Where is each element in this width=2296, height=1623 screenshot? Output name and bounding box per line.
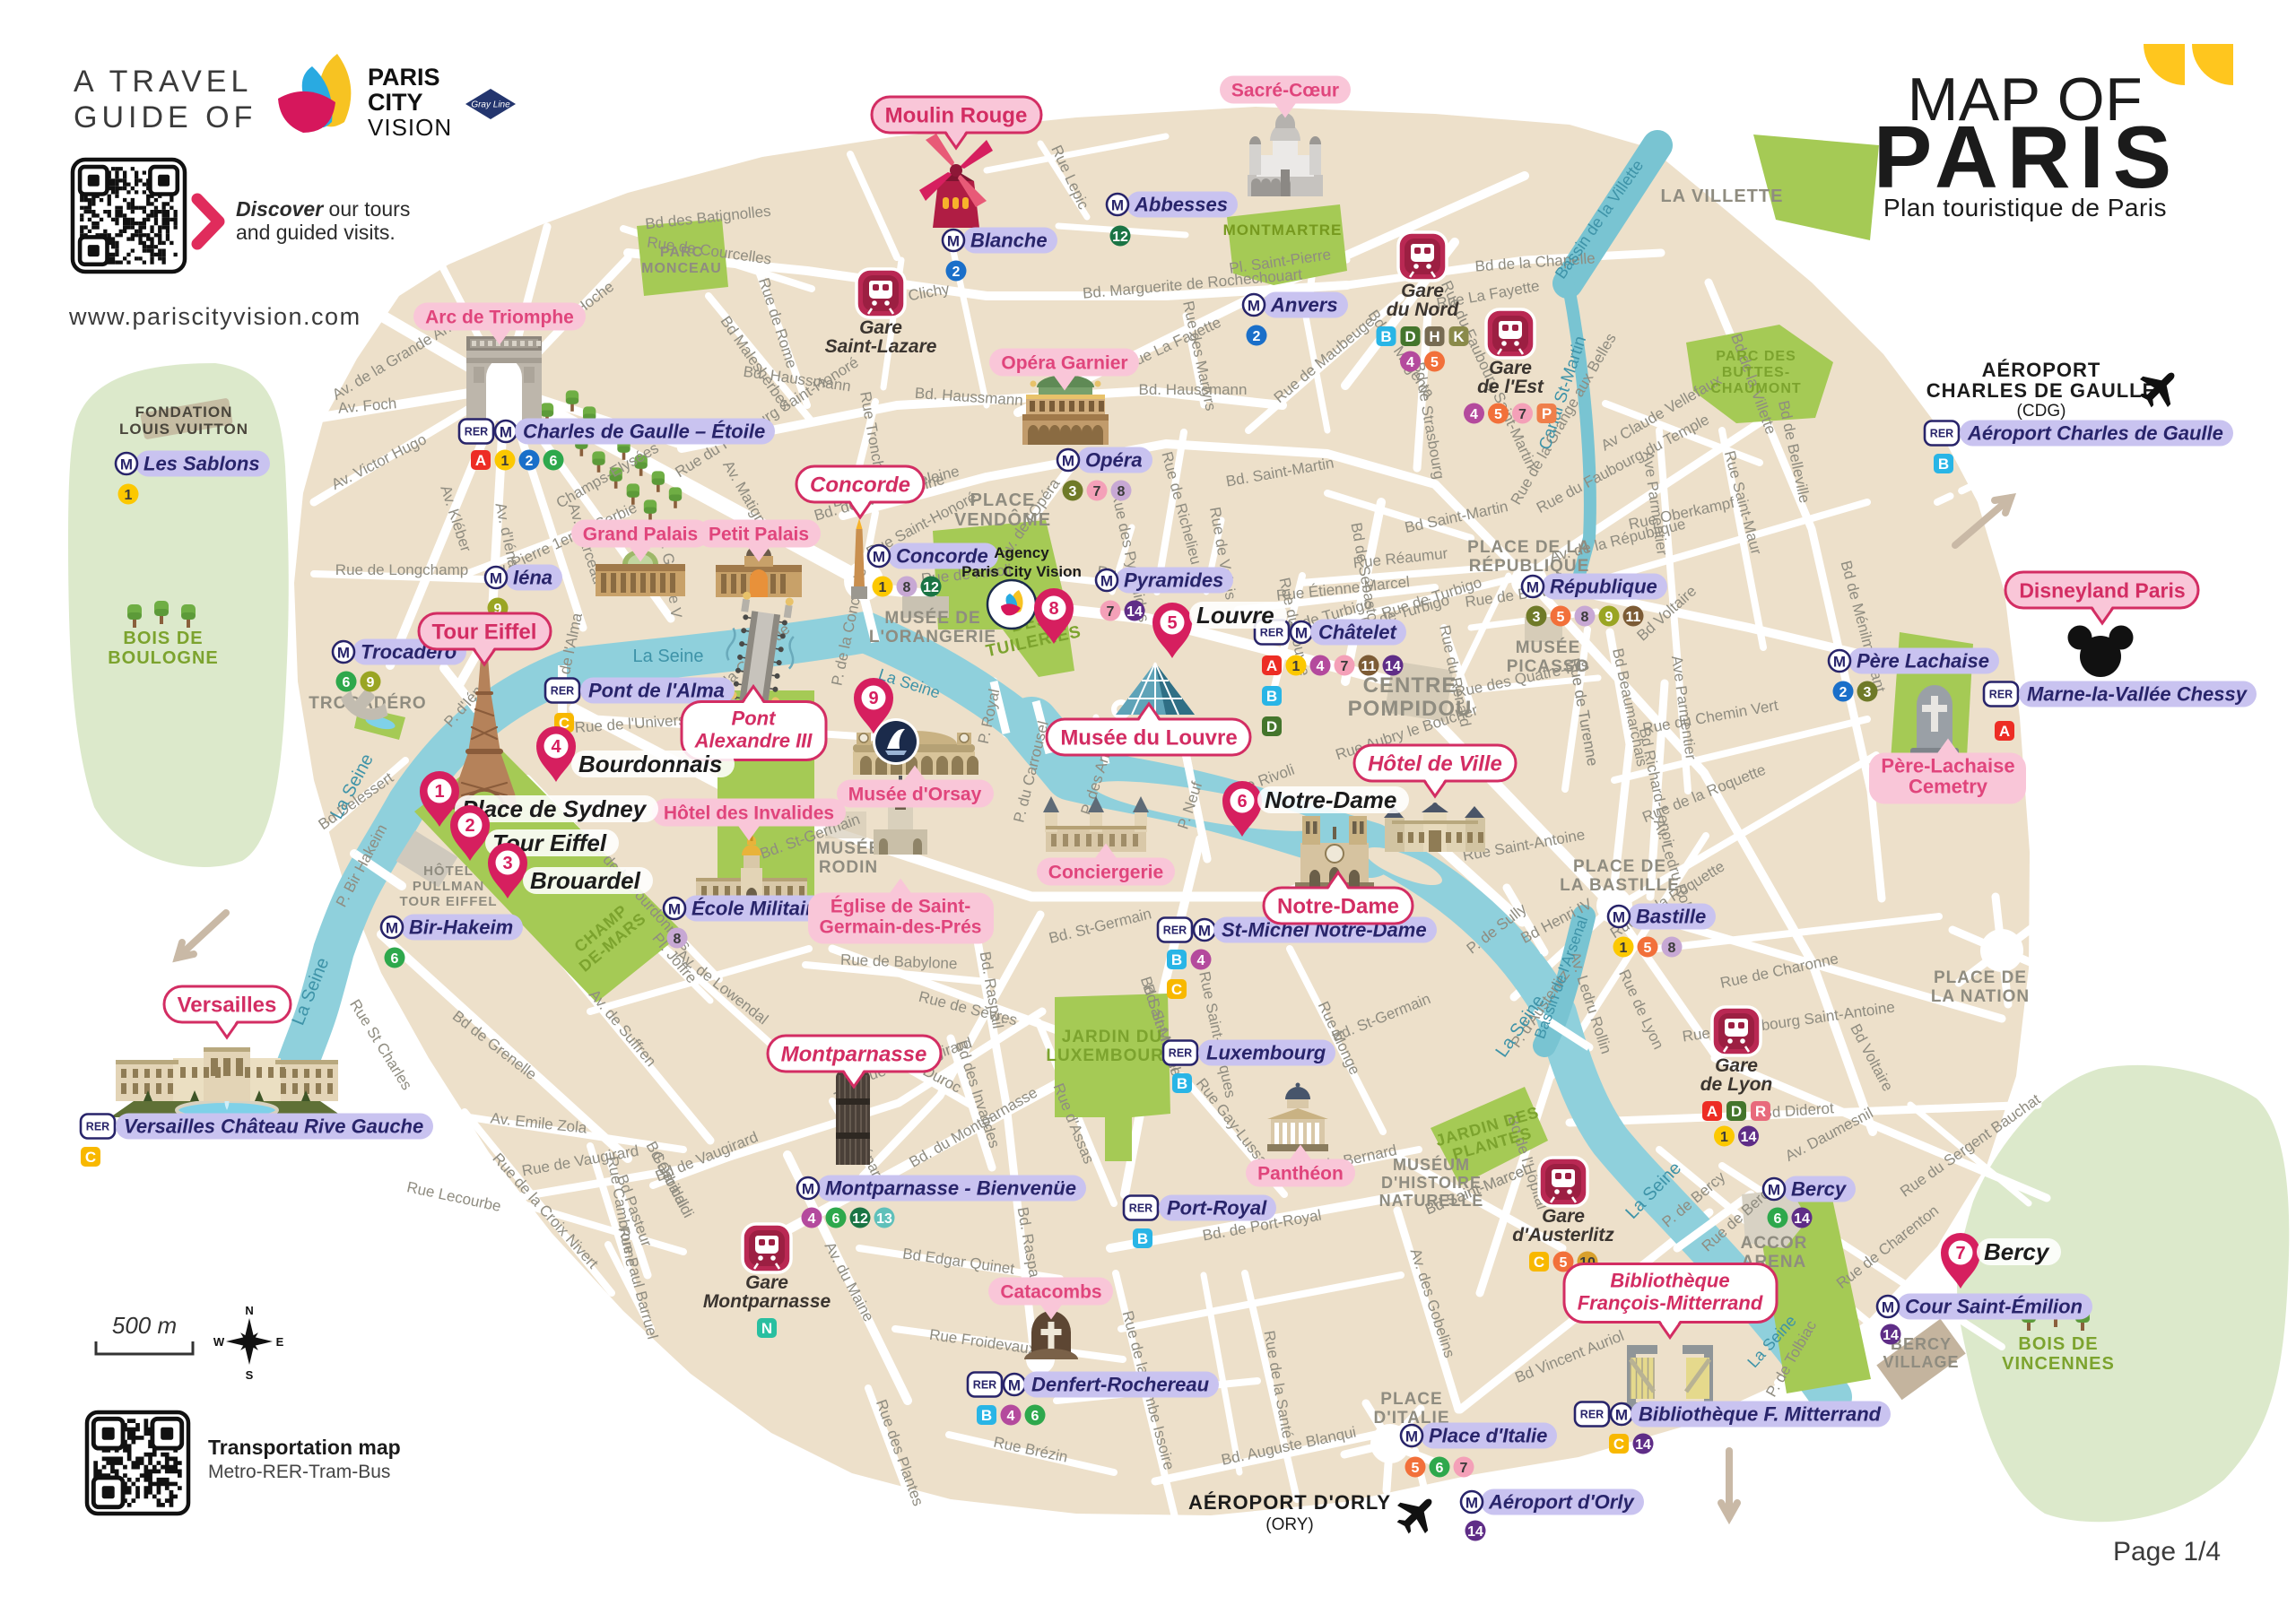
svg-text:Moulin Rouge: Moulin Rouge xyxy=(885,104,1028,128)
svg-text:M: M xyxy=(1613,909,1625,926)
svg-text:Montparnasse: Montparnasse xyxy=(703,1291,831,1312)
svg-text:D'HISTOIRE: D'HISTOIRE xyxy=(1381,1174,1482,1192)
svg-text:Musée du Louvre: Musée du Louvre xyxy=(1060,726,1237,751)
svg-text:HÔTEL: HÔTEL xyxy=(423,863,474,879)
svg-text:Hôtel de Ville: Hôtel de Ville xyxy=(1368,752,1502,777)
svg-text:4: 4 xyxy=(1470,407,1478,422)
svg-text:14: 14 xyxy=(1126,604,1143,620)
svg-text:PLACE: PLACE xyxy=(970,490,1036,510)
svg-text:N: N xyxy=(245,1304,253,1317)
svg-text:Saint-Lazare: Saint-Lazare xyxy=(825,336,937,357)
svg-text:PLACE: PLACE xyxy=(1380,1390,1442,1409)
svg-text:B: B xyxy=(981,1407,992,1424)
svg-text:M: M xyxy=(386,920,398,937)
svg-text:8: 8 xyxy=(1581,610,1589,625)
svg-text:3: 3 xyxy=(1069,484,1077,499)
svg-text:Tour Eiffel: Tour Eiffel xyxy=(432,621,537,645)
svg-text:B: B xyxy=(1177,1075,1187,1092)
svg-text:BUTTES-: BUTTES- xyxy=(1722,365,1790,380)
svg-text:Blanche: Blanche xyxy=(970,230,1048,252)
svg-text:1: 1 xyxy=(125,488,133,503)
svg-text:Discover our tours: Discover our tours xyxy=(236,197,410,221)
svg-text:M: M xyxy=(1100,573,1113,590)
svg-text:Bastille: Bastille xyxy=(1636,906,1706,928)
svg-text:Châtelet: Châtelet xyxy=(1318,621,1397,644)
svg-text:M: M xyxy=(668,901,681,918)
svg-text:LA NATION: LA NATION xyxy=(1931,987,2030,1006)
svg-text:Pyramides: Pyramides xyxy=(1124,569,1223,592)
svg-text:E: E xyxy=(276,1335,284,1349)
svg-text:VINCENNES: VINCENNES xyxy=(2002,1354,2115,1374)
svg-text:VILLAGE: VILLAGE xyxy=(1883,1353,1959,1371)
svg-text:Conciergerie: Conciergerie xyxy=(1048,863,1163,883)
svg-text:13: 13 xyxy=(876,1211,892,1227)
svg-text:B: B xyxy=(1266,688,1277,705)
svg-text:A: A xyxy=(1266,657,1277,674)
svg-text:Hôtel des Invalides: Hôtel des Invalides xyxy=(664,803,834,824)
svg-text:C: C xyxy=(1534,1254,1544,1271)
svg-text:A: A xyxy=(475,452,486,469)
svg-text:Grand Palais: Grand Palais xyxy=(583,525,698,545)
svg-text:C: C xyxy=(85,1149,96,1166)
svg-text:du Nord: du Nord xyxy=(1387,299,1460,320)
svg-text:5: 5 xyxy=(1557,610,1565,625)
svg-text:Luxembourg: Luxembourg xyxy=(1206,1042,1326,1064)
svg-text:14: 14 xyxy=(1794,1211,1810,1227)
svg-text:M: M xyxy=(337,645,350,662)
svg-text:Transportation map: Transportation map xyxy=(208,1436,401,1459)
svg-text:5: 5 xyxy=(1412,1461,1420,1476)
svg-text:Marne-la-Vallée Chessy: Marne-la-Vallée Chessy xyxy=(2027,683,2248,706)
svg-text:M: M xyxy=(1295,625,1308,642)
svg-text:CITY: CITY xyxy=(368,89,423,116)
svg-text:BOIS DE: BOIS DE xyxy=(2018,1334,2098,1354)
svg-text:LA VILLETTE: LA VILLETTE xyxy=(1661,187,1784,206)
svg-text:M: M xyxy=(1615,1407,1628,1424)
svg-text:Bd. Haussmann: Bd. Haussmann xyxy=(1139,381,1248,398)
svg-text:Agency: Agency xyxy=(994,544,1049,561)
svg-text:Place d'Italie: Place d'Italie xyxy=(1429,1425,1547,1447)
svg-text:RER: RER xyxy=(86,1121,109,1133)
svg-text:M: M xyxy=(1008,1377,1021,1394)
svg-text:Panthéon: Panthéon xyxy=(1257,1164,1344,1185)
svg-text:Germain-des-Prés: Germain-des-Prés xyxy=(820,917,982,938)
svg-text:2: 2 xyxy=(465,816,474,836)
svg-text:Les Sablons: Les Sablons xyxy=(143,453,260,475)
svg-text:NATURELLE: NATURELLE xyxy=(1379,1192,1484,1210)
svg-text:Aéroport Charles de Gaulle: Aéroport Charles de Gaulle xyxy=(1967,422,2223,445)
svg-text:PARIS: PARIS xyxy=(1874,108,2180,206)
svg-text:D: D xyxy=(1731,1103,1742,1120)
svg-text:(CDG): (CDG) xyxy=(2017,402,2066,421)
svg-text:D: D xyxy=(1266,718,1277,735)
svg-text:Gare: Gare xyxy=(1489,358,1532,378)
svg-text:d'Austerlitz: d'Austerlitz xyxy=(1512,1225,1614,1245)
svg-text:Catacombs: Catacombs xyxy=(1000,1282,1101,1303)
svg-text:M: M xyxy=(1768,1182,1780,1199)
svg-text:6: 6 xyxy=(1436,1461,1444,1476)
svg-text:PICASSO: PICASSO xyxy=(1507,657,1590,676)
svg-text:6: 6 xyxy=(1774,1211,1782,1227)
svg-text:Gare: Gare xyxy=(1715,1055,1758,1076)
svg-text:9: 9 xyxy=(1605,610,1613,625)
svg-text:and guided visits.: and guided visits. xyxy=(236,221,396,244)
svg-text:M: M xyxy=(1062,453,1074,470)
svg-text:H: H xyxy=(1429,328,1439,345)
svg-text:5: 5 xyxy=(1167,613,1177,633)
svg-text:Bibliothèque F. Mitterrand: Bibliothèque F. Mitterrand xyxy=(1639,1403,1882,1426)
svg-text:M: M xyxy=(490,570,502,587)
svg-text:1: 1 xyxy=(1620,941,1628,956)
svg-text:14: 14 xyxy=(1883,1328,1899,1343)
svg-text:2: 2 xyxy=(526,454,534,469)
svg-text:Iéna: Iéna xyxy=(513,567,552,589)
svg-text:RODIN: RODIN xyxy=(819,858,878,877)
svg-text:PARC: PARC xyxy=(660,245,703,260)
svg-text:Bir-Hakeim: Bir-Hakeim xyxy=(409,916,513,939)
svg-text:M: M xyxy=(1198,923,1211,940)
svg-text:6: 6 xyxy=(1237,792,1247,811)
svg-text:Paris City Vision: Paris City Vision xyxy=(961,563,1082,580)
svg-text:RER: RER xyxy=(551,685,574,698)
svg-text:11: 11 xyxy=(1361,659,1377,674)
svg-text:M: M xyxy=(947,233,960,250)
svg-text:7: 7 xyxy=(1093,484,1101,499)
svg-text:RER: RER xyxy=(1129,1202,1152,1215)
svg-text:2: 2 xyxy=(1839,685,1848,700)
svg-text:3: 3 xyxy=(1533,610,1541,625)
svg-text:Metro-RER-Tram-Bus: Metro-RER-Tram-Bus xyxy=(208,1462,390,1482)
svg-text:B: B xyxy=(1171,951,1182,968)
svg-text:Gare: Gare xyxy=(745,1272,788,1293)
svg-text:RER: RER xyxy=(973,1379,996,1392)
svg-text:Gare: Gare xyxy=(859,317,902,338)
svg-text:CENTRE: CENTRE xyxy=(1363,673,1457,698)
svg-text:Bourdonnais: Bourdonnais xyxy=(578,751,722,777)
svg-text:B: B xyxy=(1380,328,1391,345)
svg-text:Bercy: Bercy xyxy=(1791,1178,1848,1201)
svg-text:MONCEAU: MONCEAU xyxy=(641,261,722,276)
svg-text:VISION: VISION xyxy=(368,114,452,141)
svg-text:LUXEMBOURG: LUXEMBOURG xyxy=(1046,1046,1178,1065)
svg-text:B: B xyxy=(1938,456,1949,473)
svg-text:CHARLES DE GAULLE: CHARLES DE GAULLE xyxy=(1926,379,2157,402)
svg-text:5: 5 xyxy=(1560,1255,1568,1271)
svg-text:TOUR EIFFEL: TOUR EIFFEL xyxy=(399,894,497,909)
svg-text:11: 11 xyxy=(1626,610,1641,625)
svg-text:PARIS: PARIS xyxy=(368,64,440,91)
svg-text:Cour Saint-Émilion: Cour Saint-Émilion xyxy=(1905,1296,2083,1318)
svg-text:RER: RER xyxy=(1169,1047,1192,1060)
svg-text:PARC DES: PARC DES xyxy=(1716,349,1796,364)
svg-text:7: 7 xyxy=(1341,659,1349,674)
svg-text:D: D xyxy=(1405,328,1415,345)
svg-text:3: 3 xyxy=(1864,685,1872,700)
svg-text:RÉPUBLIQUE: RÉPUBLIQUE xyxy=(1469,556,1590,576)
svg-text:Louvre: Louvre xyxy=(1196,602,1274,629)
svg-text:C: C xyxy=(1613,1436,1624,1453)
svg-text:M: M xyxy=(1882,1299,1894,1316)
svg-text:M: M xyxy=(1526,579,1539,596)
svg-text:9: 9 xyxy=(868,689,878,708)
svg-text:JARDIN DU: JARDIN DU xyxy=(1062,1028,1162,1046)
svg-text:500 m: 500 m xyxy=(112,1312,177,1339)
svg-text:M: M xyxy=(802,1181,814,1198)
svg-text:Musée d'Orsay: Musée d'Orsay xyxy=(848,785,982,805)
svg-text:1: 1 xyxy=(434,782,444,802)
svg-text:K: K xyxy=(1453,328,1465,345)
svg-text:LA BASTILLE: LA BASTILLE xyxy=(1560,876,1680,895)
svg-text:POMPIDOU: POMPIDOU xyxy=(1348,697,1473,721)
svg-text:R: R xyxy=(1755,1103,1766,1120)
svg-text:de l'Est: de l'Est xyxy=(1477,377,1544,397)
svg-text:B: B xyxy=(1137,1230,1148,1247)
svg-text:2: 2 xyxy=(1253,329,1261,344)
svg-text:A: A xyxy=(1999,723,2010,740)
svg-text:FONDATION: FONDATION xyxy=(135,404,233,421)
svg-text:Gare: Gare xyxy=(1542,1206,1585,1227)
svg-text:M: M xyxy=(120,456,133,473)
svg-text:Aéroport d'Orly: Aéroport d'Orly xyxy=(1488,1491,1635,1514)
svg-text:PLACE DE: PLACE DE xyxy=(1573,857,1666,876)
svg-text:7: 7 xyxy=(1955,1244,1965,1263)
svg-text:Pont de l'Alma: Pont de l'Alma xyxy=(588,680,725,702)
svg-text:BOULOGNE: BOULOGNE xyxy=(108,648,219,668)
svg-text:8: 8 xyxy=(1048,599,1058,619)
svg-text:Brouardel: Brouardel xyxy=(530,867,641,894)
svg-text:Petit Palais: Petit Palais xyxy=(709,525,809,545)
svg-text:12: 12 xyxy=(923,580,939,595)
svg-text:de Lyon: de Lyon xyxy=(1700,1074,1773,1095)
svg-text:12: 12 xyxy=(1112,230,1128,245)
svg-text:Pont: Pont xyxy=(732,707,778,730)
svg-text:Abbesses: Abbesses xyxy=(1134,194,1228,216)
svg-text:François-Mitterrand: François-Mitterrand xyxy=(1578,1292,1763,1315)
svg-text:M: M xyxy=(1405,1428,1418,1445)
svg-text:Rue de Longchamp: Rue de Longchamp xyxy=(335,561,468,578)
svg-text:Montparnasse - Bienvenüe: Montparnasse - Bienvenüe xyxy=(825,1177,1076,1200)
svg-text:Charles de Gaulle – Étoile: Charles de Gaulle – Étoile xyxy=(523,421,765,443)
svg-text:Sacré-Cœur: Sacré-Cœur xyxy=(1231,81,1339,101)
svg-text:12: 12 xyxy=(852,1211,868,1227)
svg-text:MUSÉE DE: MUSÉE DE xyxy=(884,608,980,628)
svg-text:Bibliothèque: Bibliothèque xyxy=(1610,1270,1729,1292)
svg-text:Alexandre III: Alexandre III xyxy=(694,730,813,752)
svg-text:Notre-Dame: Notre-Dame xyxy=(1265,786,1396,813)
svg-text:C: C xyxy=(1171,981,1182,998)
svg-text:Gare: Gare xyxy=(1401,281,1444,301)
svg-text:4: 4 xyxy=(1317,659,1325,674)
svg-text:MONTMARTRE: MONTMARTRE xyxy=(1223,221,1343,239)
svg-text:Concorde: Concorde xyxy=(810,473,910,498)
svg-text:8: 8 xyxy=(1668,941,1676,956)
svg-text:RER: RER xyxy=(1580,1409,1604,1421)
svg-text:9: 9 xyxy=(367,675,375,690)
svg-text:Versailles: Versailles xyxy=(178,994,277,1018)
svg-text:VENDÔME: VENDÔME xyxy=(954,508,1051,530)
svg-text:PLACE DE: PLACE DE xyxy=(1934,968,2027,987)
svg-text:M: M xyxy=(873,549,885,566)
svg-text:N: N xyxy=(761,1320,772,1337)
svg-text:2: 2 xyxy=(952,265,961,280)
svg-text:MUSÉE: MUSÉE xyxy=(1516,638,1581,657)
svg-text:6: 6 xyxy=(1031,1409,1039,1424)
svg-text:7: 7 xyxy=(1518,407,1526,422)
svg-text:Opéra: Opéra xyxy=(1085,449,1143,472)
svg-text:7: 7 xyxy=(1107,604,1115,620)
svg-text:PULLMAN: PULLMAN xyxy=(413,879,484,894)
svg-text:M: M xyxy=(1111,197,1124,214)
svg-text:Disneyland Paris: Disneyland Paris xyxy=(2019,579,2185,603)
svg-text:8: 8 xyxy=(674,932,682,947)
svg-text:Anvers: Anvers xyxy=(1270,294,1338,317)
svg-text:P: P xyxy=(1542,405,1552,422)
svg-text:W: W xyxy=(213,1335,225,1349)
svg-text:1: 1 xyxy=(501,454,509,469)
svg-text:1: 1 xyxy=(1292,659,1300,674)
svg-text:S: S xyxy=(246,1368,254,1382)
svg-text:M: M xyxy=(500,424,512,441)
svg-text:8: 8 xyxy=(903,580,911,595)
svg-text:AÉROPORT: AÉROPORT xyxy=(1982,359,2101,381)
svg-text:A TRAVEL: A TRAVEL xyxy=(74,65,252,99)
svg-text:4: 4 xyxy=(1197,953,1205,968)
svg-text:5: 5 xyxy=(1494,407,1502,422)
svg-text:Opéra Garnier: Opéra Garnier xyxy=(1001,353,1127,374)
svg-text:RER: RER xyxy=(1930,428,1953,440)
svg-text:AÉROPORT D'ORLY: AÉROPORT D'ORLY xyxy=(1188,1491,1391,1514)
svg-text:6: 6 xyxy=(343,675,351,690)
svg-text:M: M xyxy=(1465,1495,1478,1512)
svg-text:MUSÉUM: MUSÉUM xyxy=(1393,1155,1470,1174)
svg-text:République: République xyxy=(1550,576,1657,598)
svg-text:6: 6 xyxy=(832,1211,840,1227)
svg-text:Versailles Château Rive Gauche: Versailles Château Rive Gauche xyxy=(124,1115,423,1138)
svg-text:GUIDE OF: GUIDE OF xyxy=(74,100,257,135)
svg-text:Denfert-Rochereau: Denfert-Rochereau xyxy=(1031,1374,1210,1396)
svg-text:1: 1 xyxy=(879,580,887,595)
svg-text:L'ORANGERIE: L'ORANGERIE xyxy=(869,628,996,647)
svg-text:Église de Saint-: Église de Saint- xyxy=(831,897,970,917)
svg-text:5: 5 xyxy=(1644,941,1652,956)
svg-text:RER: RER xyxy=(465,426,488,438)
svg-text:École Militaire: École Militaire xyxy=(691,898,824,920)
svg-text:M: M xyxy=(1833,654,1846,671)
svg-text:Bercy: Bercy xyxy=(1984,1238,2050,1265)
svg-text:3: 3 xyxy=(502,854,512,873)
svg-text:Gray Line: Gray Line xyxy=(471,100,510,110)
svg-text:Place de Sydney: Place de Sydney xyxy=(462,795,648,822)
svg-text:Page 1/4: Page 1/4 xyxy=(2113,1537,2221,1567)
svg-text:Père Lachaise: Père Lachaise xyxy=(1857,650,1989,673)
svg-text:M: M xyxy=(1248,298,1260,315)
svg-text:4: 4 xyxy=(808,1211,816,1227)
svg-text:6: 6 xyxy=(550,454,558,469)
svg-text:5: 5 xyxy=(1431,355,1439,370)
svg-text:Port-Royal: Port-Royal xyxy=(1167,1197,1267,1219)
svg-text:4: 4 xyxy=(1007,1409,1015,1424)
svg-text:RER: RER xyxy=(1989,689,2013,701)
svg-text:14: 14 xyxy=(1741,1130,1757,1145)
svg-text:Notre-Dame: Notre-Dame xyxy=(1277,895,1399,919)
svg-text:14: 14 xyxy=(1385,659,1401,674)
svg-text:MUSÉE: MUSÉE xyxy=(816,838,882,858)
svg-text:RER: RER xyxy=(1163,924,1187,937)
svg-text:4: 4 xyxy=(1406,355,1414,370)
svg-text:PLACE DE LA: PLACE DE LA xyxy=(1467,538,1591,557)
svg-text:BOIS DE: BOIS DE xyxy=(123,629,203,648)
svg-text:A: A xyxy=(1707,1103,1718,1120)
svg-text:1: 1 xyxy=(1720,1130,1728,1145)
svg-text:6: 6 xyxy=(391,951,399,967)
svg-text:ACCOR: ACCOR xyxy=(1741,1234,1808,1253)
svg-text:8: 8 xyxy=(1118,484,1126,499)
svg-text:(ORY): (ORY) xyxy=(1265,1515,1313,1534)
svg-text:14: 14 xyxy=(1467,1524,1483,1540)
svg-text:LOUIS VUITTON: LOUIS VUITTON xyxy=(119,421,248,438)
svg-text:14: 14 xyxy=(1635,1437,1651,1453)
svg-text:Montparnasse: Montparnasse xyxy=(781,1043,927,1067)
svg-text:Arc de Triomphe: Arc de Triomphe xyxy=(425,308,574,328)
svg-text:Cemetry: Cemetry xyxy=(1909,776,1988,798)
svg-text:CHAUMONT: CHAUMONT xyxy=(1710,381,1801,396)
svg-text:La Seine: La Seine xyxy=(633,647,704,666)
svg-text:Plan touristique de Paris: Plan touristique de Paris xyxy=(1883,194,2167,221)
svg-text:Père-Lachaise: Père-Lachaise xyxy=(1881,755,2014,777)
svg-text:4: 4 xyxy=(551,737,561,757)
svg-text:www.pariscityvision.com: www.pariscityvision.com xyxy=(68,303,361,330)
svg-text:7: 7 xyxy=(1460,1461,1468,1476)
